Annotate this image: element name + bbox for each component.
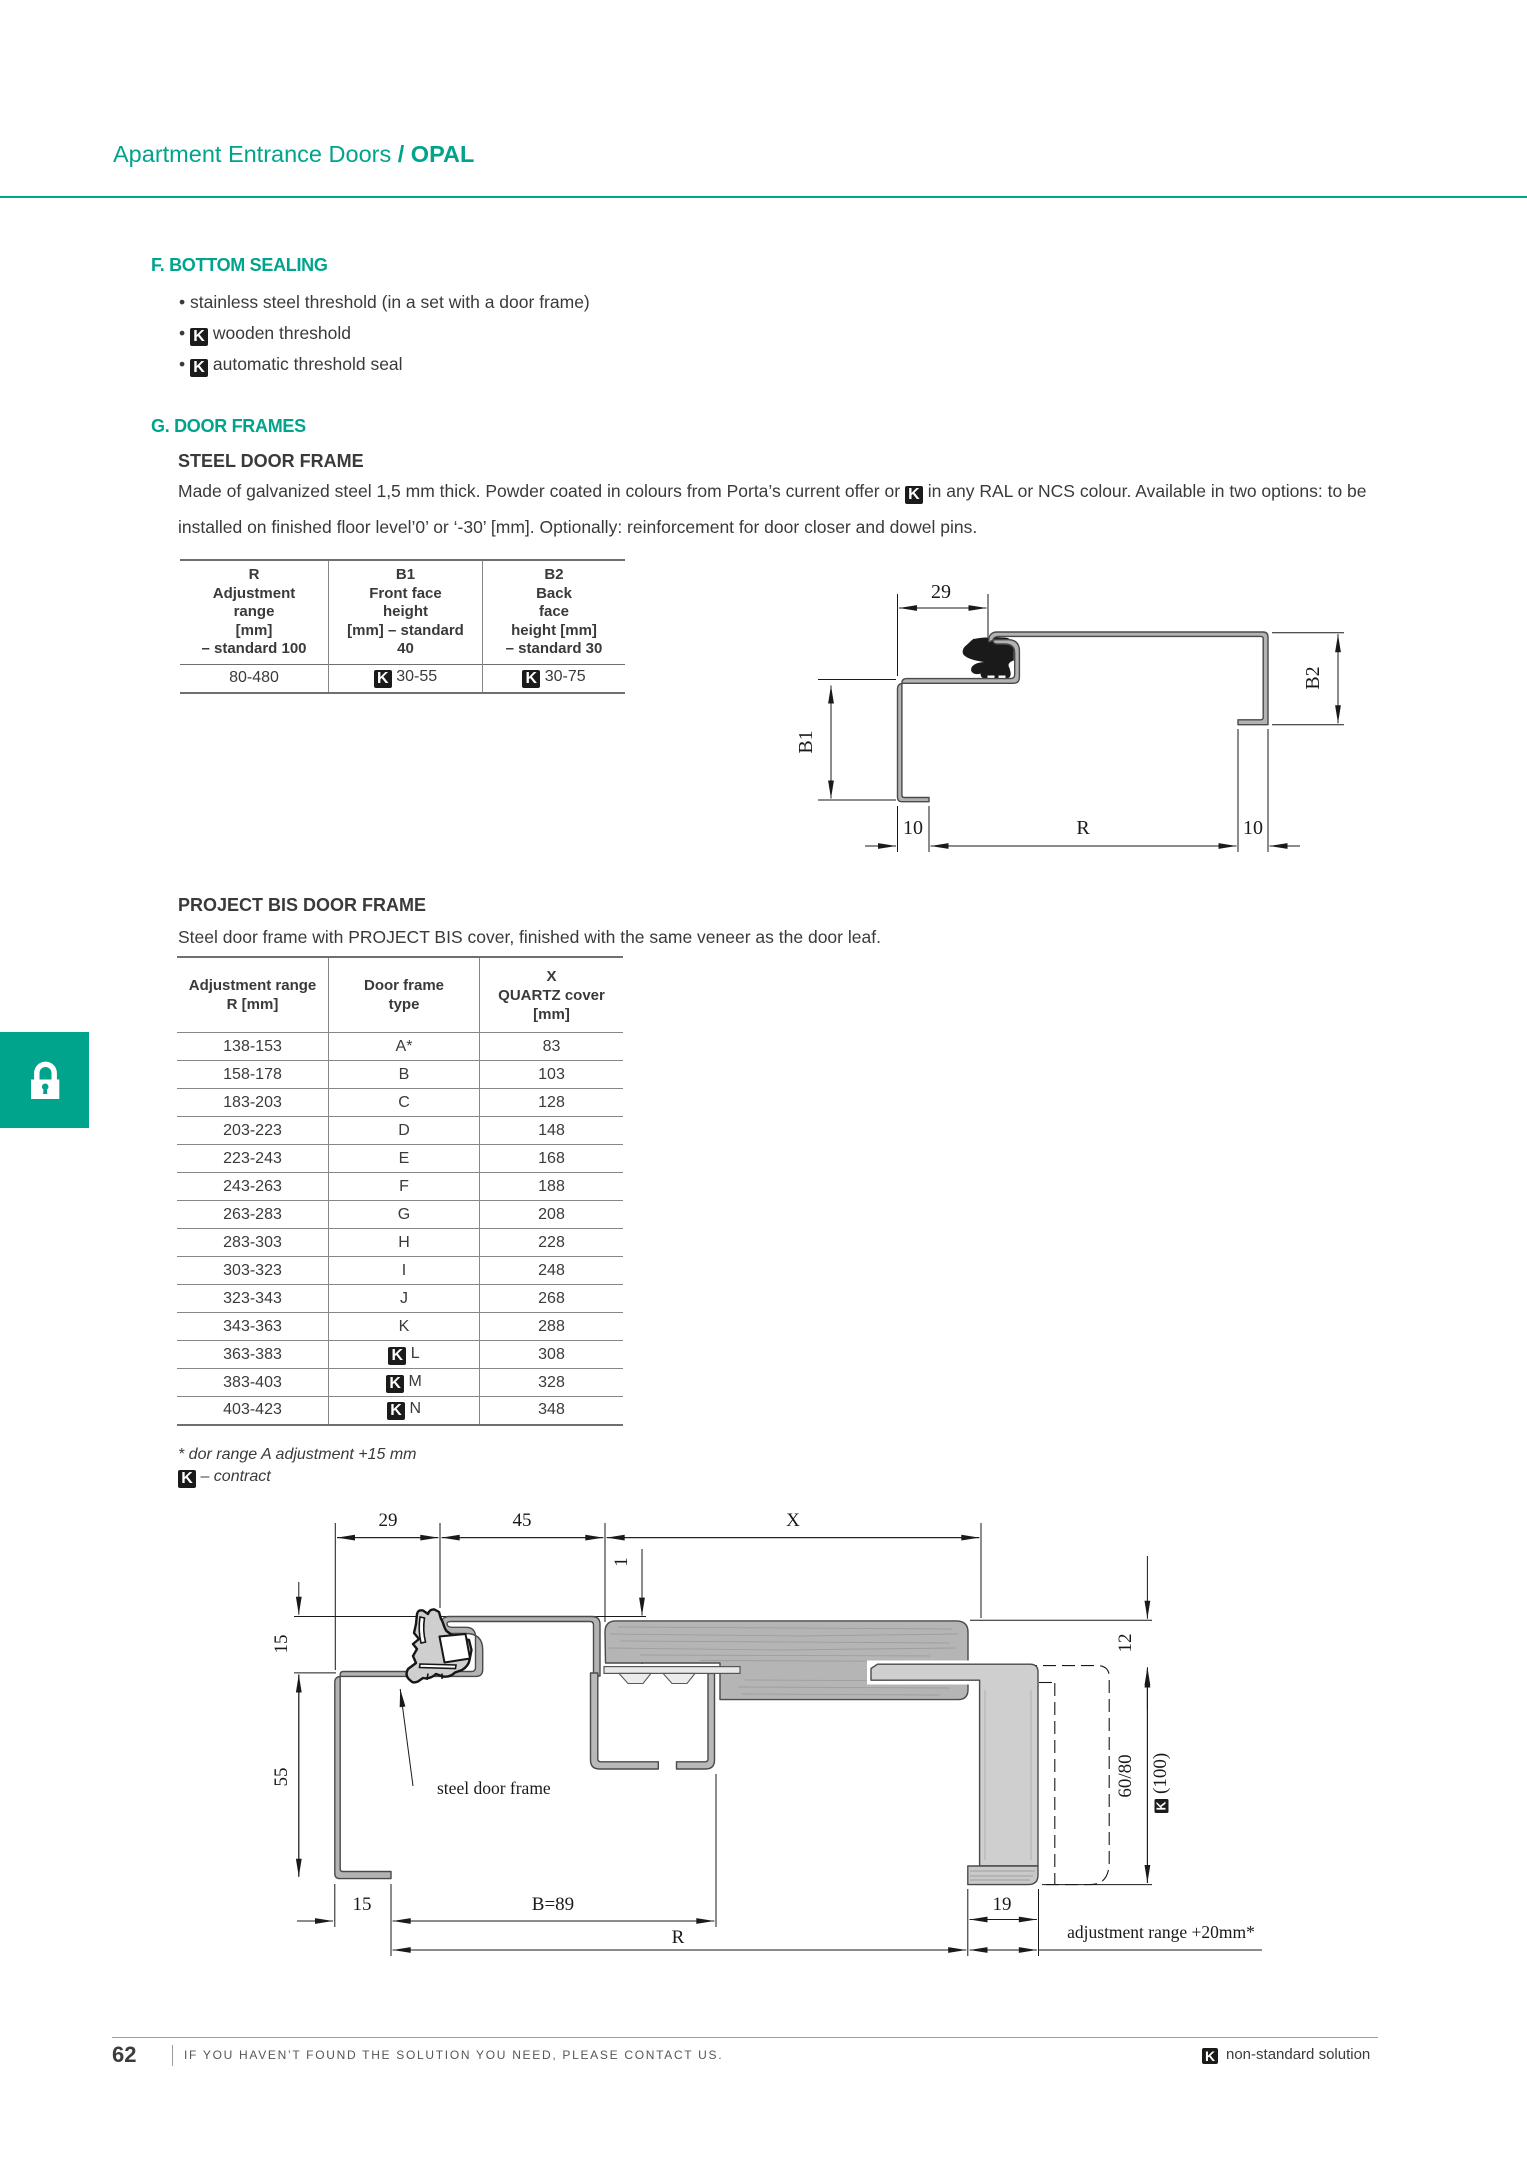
svg-text:1: 1 [611, 1557, 632, 1567]
svg-text:adjustment range +20mm*: adjustment range +20mm* [1067, 1922, 1255, 1942]
svg-text:B2: B2 [1302, 666, 1324, 689]
svg-text:10: 10 [1243, 817, 1263, 839]
svg-text:29: 29 [931, 581, 951, 603]
svg-text:X: X [786, 1510, 800, 1531]
svg-text:steel door frame: steel door frame [437, 1778, 551, 1798]
svg-text:55: 55 [271, 1768, 292, 1787]
svg-text:10: 10 [903, 817, 923, 839]
svg-text:60/80: 60/80 [1115, 1754, 1136, 1797]
svg-text:B1: B1 [795, 730, 817, 753]
svg-text:29: 29 [379, 1510, 398, 1531]
svg-text:R: R [672, 1927, 685, 1948]
svg-text:12: 12 [1115, 1634, 1136, 1653]
svg-text:R: R [1076, 817, 1090, 839]
svg-text:19: 19 [993, 1894, 1012, 1915]
svg-text:15: 15 [353, 1894, 372, 1915]
svg-text:45: 45 [513, 1510, 532, 1531]
svg-text:15: 15 [271, 1635, 292, 1654]
svg-text:B=89: B=89 [532, 1894, 574, 1915]
svg-text:K: K [1155, 1801, 1169, 1810]
svg-text:(100): (100) [1150, 1753, 1171, 1794]
